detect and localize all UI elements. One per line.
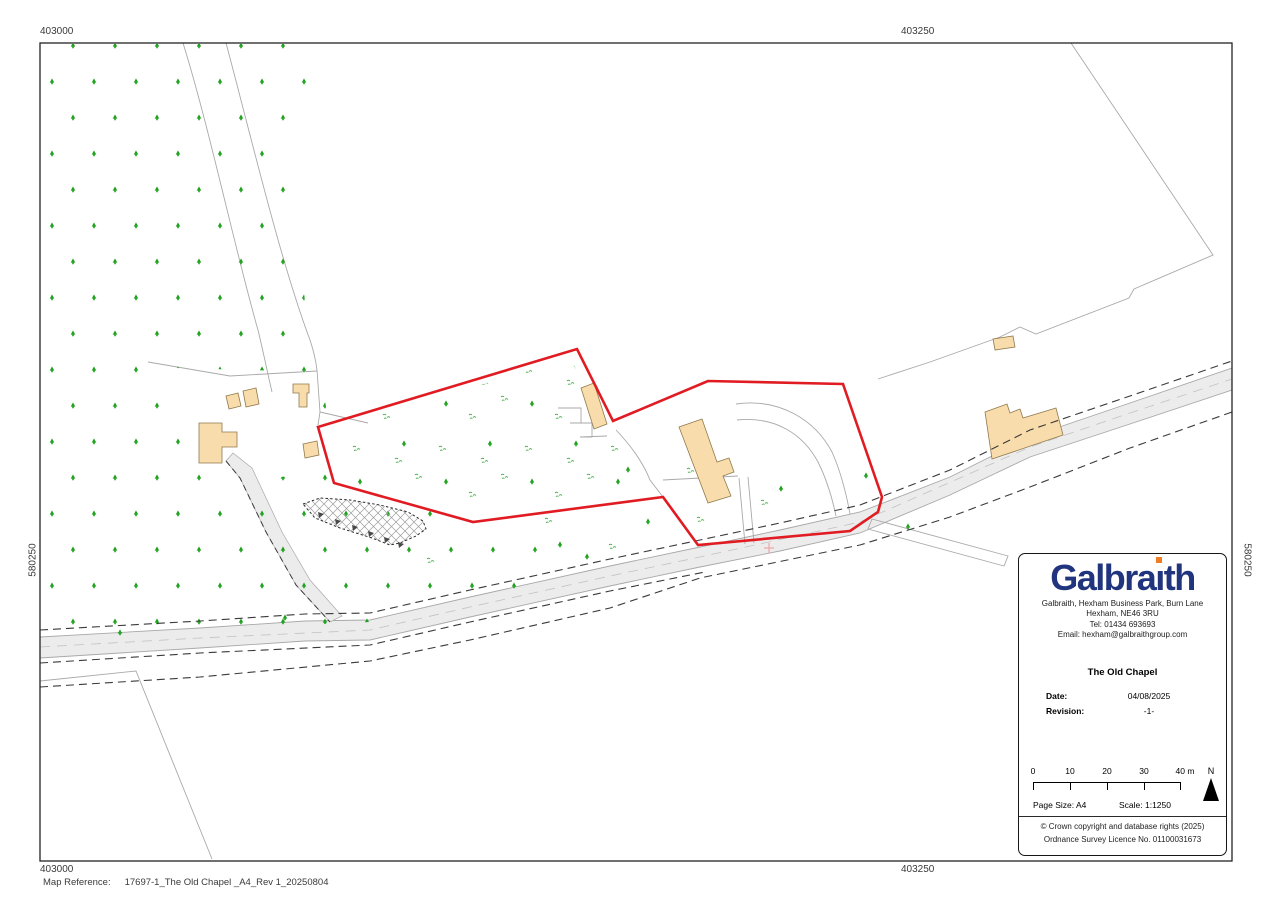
forest-area (41, 44, 560, 638)
map-reference: Map Reference:17697-1_The Old Chapel _A4… (43, 877, 328, 888)
info-panel: Galbraıth Galbraith, Hexham Business Par… (1018, 553, 1227, 856)
grid-label-top-right: 403250 (901, 26, 934, 37)
copyright-line: Ordnance Survey Licence No. 01100031673 (1019, 835, 1226, 844)
scale-tick-label: 20 (1102, 766, 1111, 776)
address-line: Email: hexham@galbraithgroup.com (1019, 630, 1226, 640)
page-size: Page Size: A4 (1033, 800, 1086, 810)
north-arrow-icon (1203, 778, 1219, 801)
revision-label: Revision: (1046, 706, 1106, 716)
grid-label-right-side: 580250 (1242, 543, 1253, 576)
logo-i-orange-dot: ı (1155, 557, 1164, 598)
grid-label-bottom-left: 403000 (40, 864, 73, 875)
building-chapel (679, 419, 734, 503)
grid-label-top-left: 403000 (40, 26, 73, 37)
galbraith-logo: Galbraıth (1019, 560, 1226, 596)
date-value: 04/08/2025 (1106, 691, 1226, 701)
map-reference-value: 17697-1_The Old Chapel _A4_Rev 1_2025080… (125, 877, 329, 888)
address-line: Tel: 01434 693693 (1019, 620, 1226, 630)
copyright-line: © Crown copyright and database rights (2… (1019, 822, 1226, 831)
grid-label-left-side: 580250 (28, 543, 39, 576)
scale-tick-label: 40 m (1176, 766, 1195, 776)
date-label: Date: (1046, 691, 1106, 701)
scale-tick-label: 30 (1139, 766, 1148, 776)
scale-text: Scale: 1:1250 (1119, 800, 1171, 810)
site-plan-page: 403000 403250 403000 403250 580250 58025… (0, 0, 1280, 905)
scale-tick-label: 0 (1031, 766, 1036, 776)
north-label: N (1208, 766, 1215, 776)
revision-value: -1- (1106, 706, 1226, 716)
panel-divider (1019, 816, 1226, 817)
scale-tick-label: 10 (1065, 766, 1074, 776)
map-reference-label: Map Reference: (43, 877, 111, 888)
address-line: Hexham, NE46 3RU (1019, 609, 1226, 619)
address-line: Galbraith, Hexham Business Park, Burn La… (1019, 599, 1226, 609)
paddock-trees-area (330, 358, 652, 516)
plan-title: The Old Chapel (1019, 667, 1226, 678)
grid-label-bottom-right: 403250 (901, 864, 934, 875)
